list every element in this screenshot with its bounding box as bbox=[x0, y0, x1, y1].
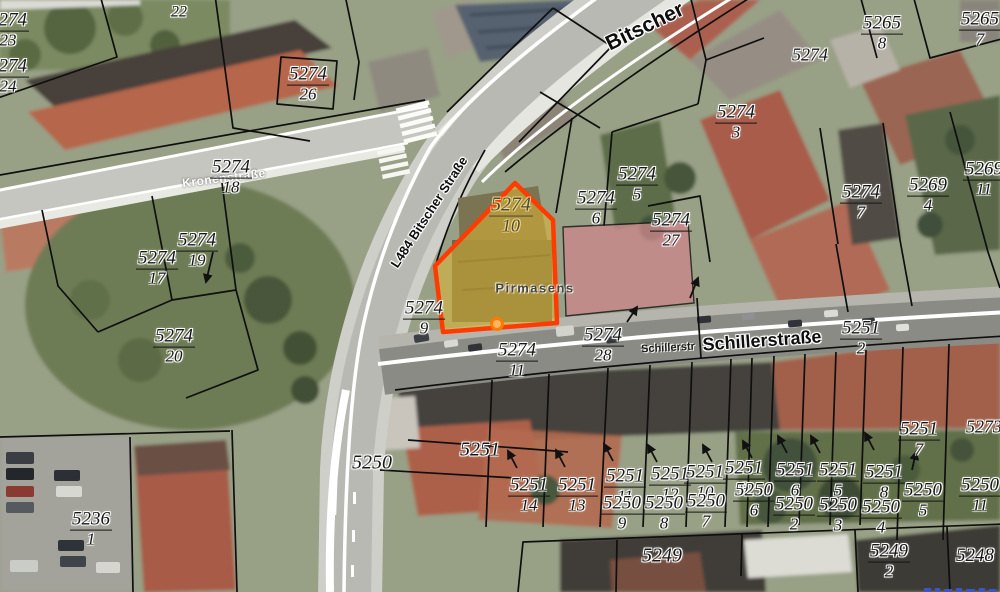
parcel-number: 5274 bbox=[650, 211, 692, 232]
parcel-subnumber: 8 bbox=[643, 515, 685, 533]
parcel-label: 52745 bbox=[616, 165, 658, 204]
parcel-number: 5251 bbox=[774, 461, 816, 482]
parcel-subnumber: 7 bbox=[959, 31, 1000, 49]
parcel-label: 527427 bbox=[650, 211, 692, 250]
parcel-number: 5274 bbox=[840, 183, 882, 204]
parcel-label: 527420 bbox=[153, 327, 195, 366]
parcel-label: 527424 bbox=[0, 57, 29, 96]
city-label: Pirmasens bbox=[495, 281, 574, 296]
street-label: Schillerstr bbox=[641, 341, 695, 356]
parcel-subnumber: 9 bbox=[403, 320, 445, 338]
parcel-subnumber: 7 bbox=[685, 513, 727, 531]
parcel-label: 52517 bbox=[898, 420, 940, 459]
parcel-label: 52361 bbox=[70, 510, 112, 549]
parcel-number: 5274 bbox=[489, 195, 533, 217]
parcel-number: 5274 bbox=[210, 158, 252, 179]
parcel-subnumber: 11 bbox=[959, 497, 1000, 515]
parcel-number: 5274 bbox=[287, 65, 329, 86]
parcel-subnumber: 4 bbox=[907, 197, 949, 215]
parcel-number: 5251 bbox=[723, 459, 765, 480]
parcel-number: 5251 bbox=[840, 319, 882, 340]
parcel-subnumber: 26 bbox=[287, 86, 329, 104]
parcel-label: 526911 bbox=[963, 160, 1000, 199]
parcel-number: 5269 bbox=[963, 160, 1000, 181]
parcel-subnumber: 5 bbox=[616, 186, 658, 204]
parcel-label: 52515 bbox=[817, 461, 859, 500]
parcel-subnumber: 10 bbox=[489, 217, 533, 236]
parcel-number: 5251 bbox=[604, 467, 646, 488]
parcel-number: 5274 bbox=[153, 327, 195, 348]
parcel-number: 5251 bbox=[898, 420, 940, 441]
parcel-label: 525113 bbox=[556, 476, 598, 515]
parcel-label: 527428 bbox=[582, 326, 624, 365]
street-label: Schillerstraße bbox=[702, 326, 822, 355]
parcel-label: 52502 bbox=[773, 495, 815, 534]
parcel-number: 5274 bbox=[0, 57, 29, 78]
parcel-number: 5274 bbox=[176, 231, 218, 252]
parcel-number: 5251 bbox=[556, 476, 598, 497]
parcel-label: 52492 bbox=[868, 542, 910, 581]
parcel-number: 5250 bbox=[860, 498, 902, 519]
parcel-label: 52505 bbox=[902, 481, 944, 520]
parcel-subnumber: 11 bbox=[963, 181, 1000, 199]
parcel-number: 5269 bbox=[907, 176, 949, 197]
parcel-label: 527419 bbox=[176, 231, 218, 270]
parcel-subnumber: 17 bbox=[136, 270, 178, 288]
parcel-subnumber: 3 bbox=[817, 517, 859, 535]
map-labels-layer: BitscherL484 Bitscher StraßeKronenstraße… bbox=[0, 0, 1000, 592]
parcel-number: 5250 bbox=[643, 494, 685, 515]
parcel-label: 527411 bbox=[496, 341, 538, 380]
parcel-label: 525114 bbox=[508, 476, 550, 515]
parcel-label: 52509 bbox=[601, 494, 643, 533]
parcel-label: 52749 bbox=[403, 299, 445, 338]
parcel-number: 5249 bbox=[868, 542, 910, 563]
parcel-label: 52746 bbox=[575, 189, 617, 228]
parcel-subnumber: 11 bbox=[496, 362, 538, 380]
parcel-subnumber: 5 bbox=[902, 502, 944, 520]
area-label: 22 bbox=[171, 5, 187, 22]
parcel-subnumber: 6 bbox=[733, 502, 775, 520]
parcel-number: 5274 bbox=[715, 103, 757, 124]
parcel-number: 5250 bbox=[773, 495, 815, 516]
parcel-subnumber: 18 bbox=[210, 179, 252, 197]
map-canvas[interactable]: BitscherL484 Bitscher StraßeKronenstraße… bbox=[0, 0, 1000, 592]
parcel-subnumber: 14 bbox=[508, 497, 550, 515]
parcel-subnumber: 9 bbox=[601, 515, 643, 533]
parcel-label: 52657 bbox=[959, 10, 1000, 49]
parcel-number: 5250 bbox=[959, 476, 1000, 497]
parcel-label: 52743 bbox=[715, 103, 757, 142]
selected-parcel-label: 527410 bbox=[489, 195, 533, 236]
parcel-subnumber: 2 bbox=[840, 340, 882, 358]
parcel-subnumber: 28 bbox=[582, 347, 624, 365]
parcel-number: 5251 bbox=[684, 463, 726, 484]
parcel-label: 527426 bbox=[287, 65, 329, 104]
parcel-number: 5250 bbox=[733, 481, 775, 502]
parcel-number: 5274 bbox=[136, 249, 178, 270]
area-label: 5274 bbox=[792, 46, 828, 65]
parcel-label: 52508 bbox=[643, 494, 685, 533]
parcel-label: 527417 bbox=[136, 249, 178, 288]
area-label: 5249 bbox=[642, 546, 682, 567]
area-label: 5273 bbox=[966, 418, 1000, 437]
parcel-label: 52504 bbox=[860, 498, 902, 537]
parcel-number: 5274 bbox=[0, 11, 29, 32]
parcel-subnumber: 24 bbox=[0, 78, 29, 96]
parcel-number: 5251 bbox=[863, 463, 905, 484]
parcel-subnumber: 3 bbox=[715, 124, 757, 142]
parcel-label: 52694 bbox=[907, 176, 949, 215]
parcel-subnumber: 20 bbox=[153, 348, 195, 366]
parcel-subnumber: 19 bbox=[176, 252, 218, 270]
parcel-label: 52747 bbox=[840, 183, 882, 222]
parcel-number: 5274 bbox=[403, 299, 445, 320]
parcel-subnumber: 4 bbox=[860, 519, 902, 537]
parcel-label: 52503 bbox=[817, 496, 859, 535]
parcel-label: 527423 bbox=[0, 11, 29, 50]
parcel-number: 5251 bbox=[508, 476, 550, 497]
parcel-label: 525011 bbox=[959, 476, 1000, 515]
parcel-subnumber: 7 bbox=[840, 204, 882, 222]
parcel-number: 5274 bbox=[575, 189, 617, 210]
parcel-subnumber: 2 bbox=[868, 563, 910, 581]
parcel-number: 5274 bbox=[582, 326, 624, 347]
parcel-number: 5236 bbox=[70, 510, 112, 531]
parcel-subnumber: 2 bbox=[773, 516, 815, 534]
area-label: 5251 bbox=[460, 440, 500, 461]
parcel-subnumber: 23 bbox=[0, 32, 29, 50]
parcel-label: 52518 bbox=[863, 463, 905, 502]
parcel-number: 5274 bbox=[616, 165, 658, 186]
parcel-number: 5250 bbox=[601, 494, 643, 515]
parcel-number: 5274 bbox=[496, 341, 538, 362]
parcel-label: 52658 bbox=[861, 14, 903, 53]
street-label: L484 Bitscher Straße bbox=[387, 154, 470, 271]
parcel-label: 52512 bbox=[840, 319, 882, 358]
parcel-number: 5250 bbox=[902, 481, 944, 502]
parcel-subnumber: 27 bbox=[650, 232, 692, 250]
street-label: Bitscher bbox=[602, 0, 688, 56]
parcel-subnumber: 1 bbox=[70, 531, 112, 549]
parcel-number: 5265 bbox=[861, 14, 903, 35]
parcel-subnumber: 7 bbox=[898, 441, 940, 459]
parcel-label: 52507 bbox=[685, 492, 727, 531]
parcel-label: 527418 bbox=[210, 158, 252, 197]
parcel-number: 5250 bbox=[817, 496, 859, 517]
parcel-subnumber: 8 bbox=[861, 35, 903, 53]
parcel-number: 5250 bbox=[685, 492, 727, 513]
area-label: 5250 bbox=[352, 453, 392, 474]
area-label: 5248 bbox=[956, 546, 994, 566]
parcel-subnumber: 13 bbox=[556, 497, 598, 515]
parcel-number: 5251 bbox=[817, 461, 859, 482]
parcel-number: 5265 bbox=[959, 10, 1000, 31]
parcel-subnumber: 6 bbox=[575, 210, 617, 228]
parcel-label: 52506 bbox=[733, 481, 775, 520]
